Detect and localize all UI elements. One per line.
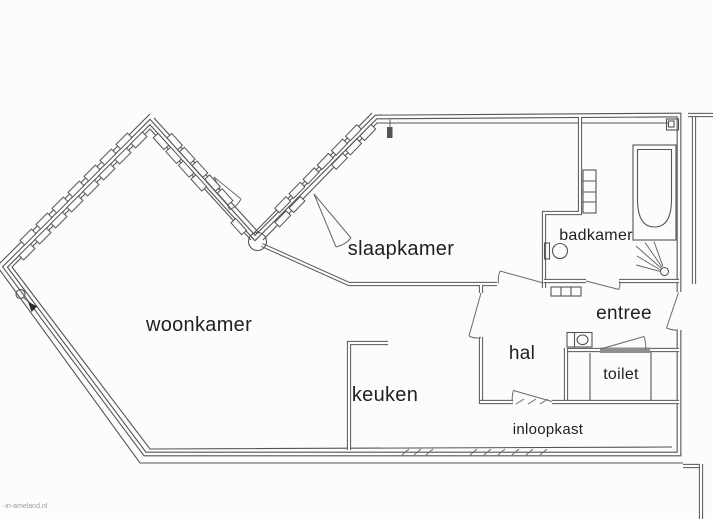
inloopkast-door (512, 391, 552, 405)
balcony-door-slaapkamer (314, 194, 351, 247)
room-label-woonkamer: woonkamer (145, 314, 252, 336)
floor-plan-canvas: woonkamer slaapkamer badkamer entree hal… (0, 0, 713, 519)
bathtub (633, 145, 676, 240)
room-label-badkamer: badkamer (559, 227, 633, 244)
gallery-walls (683, 115, 713, 519)
room-label-hal: hal (509, 343, 535, 364)
toilet-door (600, 337, 650, 354)
inner-facade-line (263, 123, 668, 240)
radiator-entree (551, 287, 581, 296)
room-label-keuken: keuken (352, 384, 418, 406)
slaapkamer-door (498, 271, 543, 284)
radiator-badkamer (583, 170, 596, 213)
front-door (667, 292, 685, 330)
ceiling-light-point (387, 120, 393, 139)
watermark-text: -in-ameland.nl (3, 503, 48, 510)
hal-door (469, 293, 481, 338)
room-label-entree: entree (596, 303, 652, 324)
room-label-slaapkamer: slaapkamer (348, 238, 454, 260)
toilet-fixture (567, 333, 592, 348)
shower (636, 242, 669, 276)
floor-plan-page: woonkamer slaapkamer badkamer entree hal… (0, 0, 713, 519)
badkamer-door (586, 281, 620, 290)
room-label-toilet: toilet (603, 366, 639, 383)
washbasin (545, 243, 568, 259)
room-label-inloopkast: inloopkast (513, 421, 584, 438)
